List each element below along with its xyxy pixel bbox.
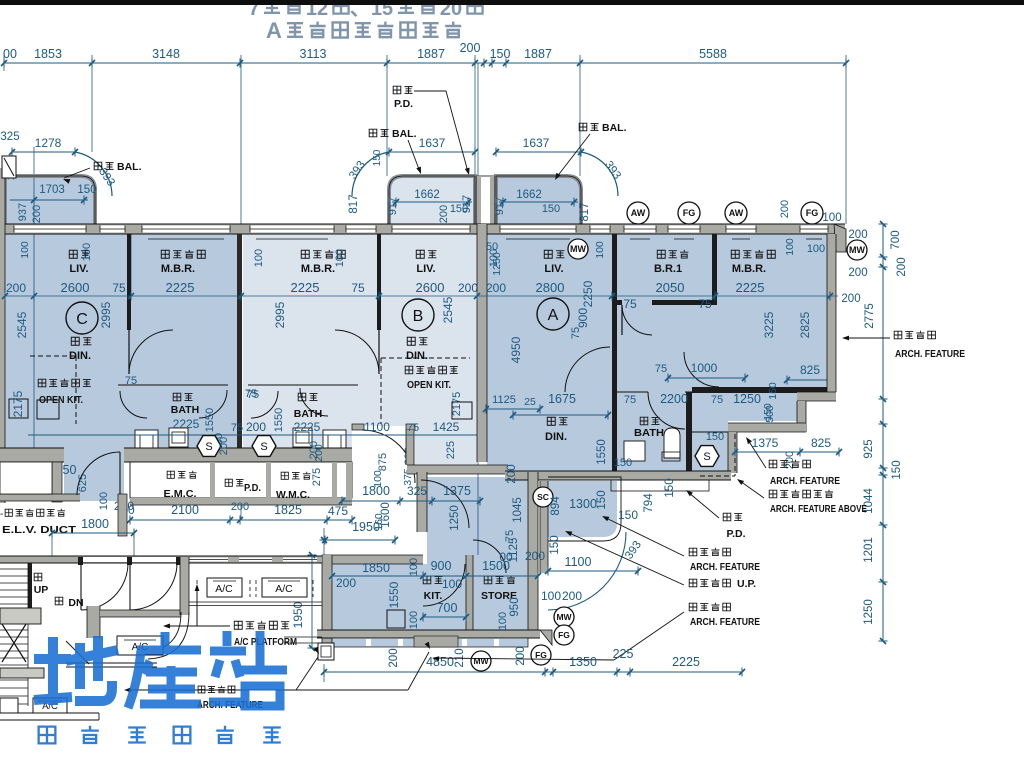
svg-text:200: 200 (515, 646, 527, 665)
svg-text:ARCH. FEATURE: ARCH. FEATURE (895, 348, 965, 360)
svg-text:1662: 1662 (516, 189, 542, 201)
svg-text:75: 75 (655, 363, 667, 375)
svg-text:2225: 2225 (291, 280, 320, 295)
svg-text:2250: 2250 (581, 280, 595, 307)
svg-text:817: 817 (348, 194, 360, 213)
svg-text:75: 75 (407, 422, 419, 434)
svg-text:875: 875 (377, 453, 389, 471)
svg-text:200: 200 (896, 257, 908, 276)
svg-text:1887: 1887 (417, 47, 445, 61)
svg-text:100: 100 (541, 589, 561, 603)
svg-text:A/C PLATFORM: A/C PLATFORM (234, 636, 297, 648)
svg-text:M.B.R.: M.B.R. (732, 263, 766, 275)
svg-text:200: 200 (6, 281, 26, 295)
svg-text:MW: MW (473, 656, 489, 666)
svg-text:100: 100 (442, 577, 462, 591)
svg-text:150: 150 (891, 460, 903, 479)
svg-text:U.P.: U.P. (737, 578, 756, 590)
svg-text:200: 200 (562, 589, 582, 603)
svg-text:894: 894 (550, 496, 562, 516)
svg-text:BAL.: BAL. (602, 122, 627, 134)
svg-text:200: 200 (31, 205, 43, 223)
svg-text:2175: 2175 (11, 390, 25, 417)
svg-text:MW: MW (570, 244, 586, 254)
svg-text:200: 200 (486, 281, 506, 295)
svg-text:2825: 2825 (798, 311, 812, 338)
svg-text:1045: 1045 (512, 497, 524, 523)
svg-text:1300: 1300 (569, 497, 597, 511)
svg-text:P.D.: P.D. (394, 98, 413, 110)
svg-text:25: 25 (524, 396, 536, 408)
svg-text:150: 150 (549, 535, 561, 554)
svg-text:825: 825 (800, 363, 820, 377)
svg-text:100: 100 (408, 611, 420, 629)
svg-text:75: 75 (504, 530, 516, 542)
svg-text:75: 75 (623, 297, 637, 311)
svg-text:4950: 4950 (509, 336, 523, 363)
svg-text:A: A (548, 307, 559, 324)
svg-text:150: 150 (542, 203, 560, 215)
svg-text:200: 200 (336, 576, 356, 590)
svg-text:100: 100 (497, 612, 509, 630)
svg-text:-: - (0, 509, 3, 520)
svg-text:2545: 2545 (15, 311, 29, 338)
svg-text:1100: 1100 (565, 555, 592, 569)
svg-text:BATH: BATH (634, 427, 664, 439)
svg-text:A/C: A/C (275, 583, 293, 595)
svg-text:794: 794 (643, 493, 655, 513)
svg-text:E.M.C.: E.M.C. (164, 488, 197, 500)
svg-text:200: 200 (308, 441, 320, 459)
svg-text:75: 75 (125, 375, 137, 387)
svg-text:200: 200 (525, 549, 545, 563)
svg-text:S: S (260, 441, 267, 453)
svg-text:2775: 2775 (864, 303, 876, 329)
svg-text:1350: 1350 (569, 655, 597, 669)
svg-text:100: 100 (822, 212, 841, 224)
svg-text:225: 225 (445, 441, 457, 459)
svg-text:ARCH. FEATURE: ARCH. FEATURE (770, 475, 840, 487)
svg-text:AW: AW (631, 208, 646, 218)
svg-text:FG: FG (558, 630, 570, 640)
svg-text:200: 200 (848, 267, 867, 279)
svg-text:100: 100 (19, 241, 31, 259)
svg-text:100: 100 (98, 492, 110, 510)
svg-text:1675: 1675 (548, 392, 576, 406)
svg-text:75: 75 (698, 297, 712, 311)
svg-text:00: 00 (499, 550, 513, 564)
svg-text:475: 475 (328, 504, 348, 518)
svg-text:1375: 1375 (443, 484, 471, 498)
svg-text:200: 200 (231, 501, 249, 513)
svg-text:C: C (76, 311, 88, 328)
svg-text:AW: AW (729, 208, 744, 218)
svg-text:B: B (413, 308, 424, 325)
svg-text:M.B.R.: M.B.R. (301, 263, 335, 275)
svg-text:ARCH. FEATURE: ARCH. FEATURE (690, 616, 760, 628)
svg-text:225: 225 (613, 647, 634, 661)
svg-text:75: 75 (624, 394, 636, 406)
svg-text:200: 200 (848, 229, 867, 241)
svg-text:75: 75 (245, 388, 257, 400)
svg-text:2600: 2600 (61, 280, 90, 295)
svg-text:BATH: BATH (171, 404, 199, 416)
svg-text:500: 500 (764, 405, 776, 423)
svg-text:LIV.: LIV. (69, 263, 88, 275)
svg-text:100: 100 (807, 243, 825, 255)
svg-text:1550: 1550 (596, 439, 608, 465)
svg-text:SC: SC (537, 492, 549, 502)
svg-text:150: 150 (618, 508, 638, 522)
svg-text:150: 150 (706, 431, 724, 443)
svg-text:2225: 2225 (736, 280, 765, 295)
svg-text:900: 900 (431, 559, 452, 573)
svg-text:A/C: A/C (215, 583, 233, 595)
svg-text:1550: 1550 (204, 408, 216, 432)
svg-text:2175: 2175 (451, 392, 463, 416)
svg-text:BAL.: BAL. (392, 128, 417, 140)
svg-text:MW: MW (556, 612, 572, 622)
svg-text:M.B.R.: M.B.R. (161, 263, 195, 275)
svg-text:1425: 1425 (433, 420, 460, 434)
svg-text:200: 200 (458, 281, 478, 295)
svg-text:1550: 1550 (273, 408, 285, 432)
svg-text:200: 200 (388, 648, 400, 667)
svg-text:937: 937 (17, 203, 29, 221)
svg-text:700: 700 (890, 230, 902, 249)
svg-text:200: 200 (438, 205, 450, 223)
svg-text:200: 200 (784, 451, 796, 469)
svg-text:1375: 1375 (752, 436, 779, 450)
svg-text:2800: 2800 (536, 280, 565, 295)
svg-text:2050: 2050 (656, 280, 685, 295)
svg-text:2545: 2545 (441, 296, 455, 323)
svg-text:ARCH. FEATURE: ARCH. FEATURE (690, 561, 760, 573)
svg-text:100: 100 (488, 249, 500, 267)
svg-text:2600: 2600 (416, 280, 445, 295)
svg-text:900: 900 (576, 308, 590, 328)
svg-text:FG: FG (806, 208, 819, 218)
svg-text:MW: MW (849, 245, 865, 255)
svg-text:1125: 1125 (492, 394, 516, 406)
svg-text:950: 950 (509, 597, 521, 616)
svg-text:FG: FG (683, 208, 696, 218)
svg-text:1000: 1000 (691, 361, 718, 375)
svg-text:100: 100 (334, 249, 346, 267)
svg-text:E.L.V. DUCT: E.L.V. DUCT (2, 524, 77, 536)
svg-text:2225: 2225 (294, 420, 321, 434)
svg-text:UP: UP (34, 584, 49, 596)
svg-text:1550: 1550 (387, 581, 401, 608)
svg-text:00: 00 (3, 47, 17, 61)
svg-text:200: 200 (779, 200, 791, 218)
svg-text:1201: 1201 (863, 537, 875, 563)
svg-text:1850: 1850 (362, 561, 390, 575)
svg-text:200: 200 (506, 464, 518, 483)
svg-text:1800: 1800 (81, 517, 109, 531)
svg-text:1637: 1637 (523, 136, 550, 150)
svg-text:2225: 2225 (672, 655, 700, 669)
svg-text:150: 150 (767, 382, 779, 400)
svg-text:200: 200 (246, 420, 266, 434)
svg-text:150: 150 (614, 457, 632, 469)
svg-text:917: 917 (494, 197, 506, 215)
svg-text:700: 700 (437, 601, 458, 615)
svg-text:100: 100 (253, 249, 265, 267)
svg-text:2225: 2225 (166, 280, 195, 295)
svg-text:825: 825 (811, 436, 831, 450)
svg-text:75: 75 (231, 422, 243, 434)
svg-text:1250: 1250 (863, 599, 875, 625)
svg-text:FG: FG (535, 650, 547, 660)
svg-text:3148: 3148 (152, 47, 180, 61)
svg-text:DIN.: DIN. (545, 431, 567, 443)
svg-text:2995: 2995 (99, 301, 113, 328)
svg-text:P.D.: P.D. (244, 482, 261, 494)
svg-text:1250: 1250 (733, 392, 761, 406)
svg-text:325: 325 (407, 484, 427, 498)
svg-text:B.R.1: B.R.1 (654, 263, 682, 275)
svg-text:75: 75 (711, 394, 723, 406)
svg-text:A: A (266, 18, 282, 43)
svg-text:OPEN KIT.: OPEN KIT. (39, 395, 83, 406)
svg-text:1825: 1825 (274, 503, 302, 517)
svg-text:150: 150 (77, 184, 96, 196)
svg-text:1100: 1100 (364, 420, 390, 434)
svg-text:S: S (703, 451, 710, 463)
svg-text:275: 275 (311, 468, 323, 486)
svg-text:DIN.: DIN. (406, 350, 428, 362)
svg-text:917: 917 (461, 195, 473, 213)
svg-text:1250: 1250 (449, 505, 461, 531)
svg-text:100: 100 (594, 241, 606, 259)
svg-text:S: S (205, 441, 212, 453)
svg-text:BAL.: BAL. (117, 161, 142, 173)
svg-text:DIN.: DIN. (69, 350, 91, 362)
svg-text:1637: 1637 (419, 136, 446, 150)
svg-text:LIV.: LIV. (544, 263, 563, 275)
svg-text:75: 75 (351, 281, 365, 295)
svg-text:100: 100 (408, 558, 420, 576)
svg-text:200: 200 (218, 437, 230, 455)
svg-text:925: 925 (863, 439, 875, 458)
svg-text:1853: 1853 (34, 47, 62, 61)
svg-text:4850: 4850 (426, 655, 454, 669)
svg-text:200: 200 (460, 41, 481, 55)
svg-text:3113: 3113 (300, 47, 327, 61)
svg-text:150: 150 (596, 490, 608, 509)
svg-text:1662: 1662 (414, 189, 440, 201)
svg-text:917: 917 (387, 197, 399, 215)
svg-text:75: 75 (112, 281, 126, 295)
svg-text:1703: 1703 (39, 184, 65, 196)
svg-text:325: 325 (0, 131, 19, 143)
svg-text:100: 100 (81, 243, 93, 261)
svg-text:OPEN KIT.: OPEN KIT. (407, 380, 451, 391)
svg-text:160: 160 (373, 513, 385, 531)
svg-text:2200: 2200 (660, 392, 688, 406)
svg-text:100: 100 (784, 238, 796, 256)
svg-text:2995: 2995 (273, 301, 287, 328)
svg-text:150: 150 (490, 47, 511, 61)
svg-text:150: 150 (664, 478, 676, 497)
svg-text:200: 200 (841, 293, 860, 305)
svg-text:2100: 2100 (171, 503, 199, 517)
svg-text:3225: 3225 (762, 311, 776, 338)
svg-text:2225: 2225 (173, 417, 200, 431)
svg-text:ARCH. FEATURE ABOVE: ARCH. FEATURE ABOVE (770, 503, 867, 515)
svg-text:75: 75 (570, 327, 582, 339)
svg-text:BATH: BATH (294, 408, 322, 420)
svg-text:1887: 1887 (524, 47, 552, 61)
svg-text:1800: 1800 (362, 484, 390, 498)
svg-text:W.M.C.: W.M.C. (276, 489, 310, 501)
svg-text:817: 817 (579, 202, 591, 221)
svg-text:P.D.: P.D. (726, 528, 745, 540)
svg-text:5588: 5588 (699, 47, 727, 61)
svg-text:1278: 1278 (35, 136, 62, 150)
svg-text:LIV.: LIV. (416, 263, 435, 275)
